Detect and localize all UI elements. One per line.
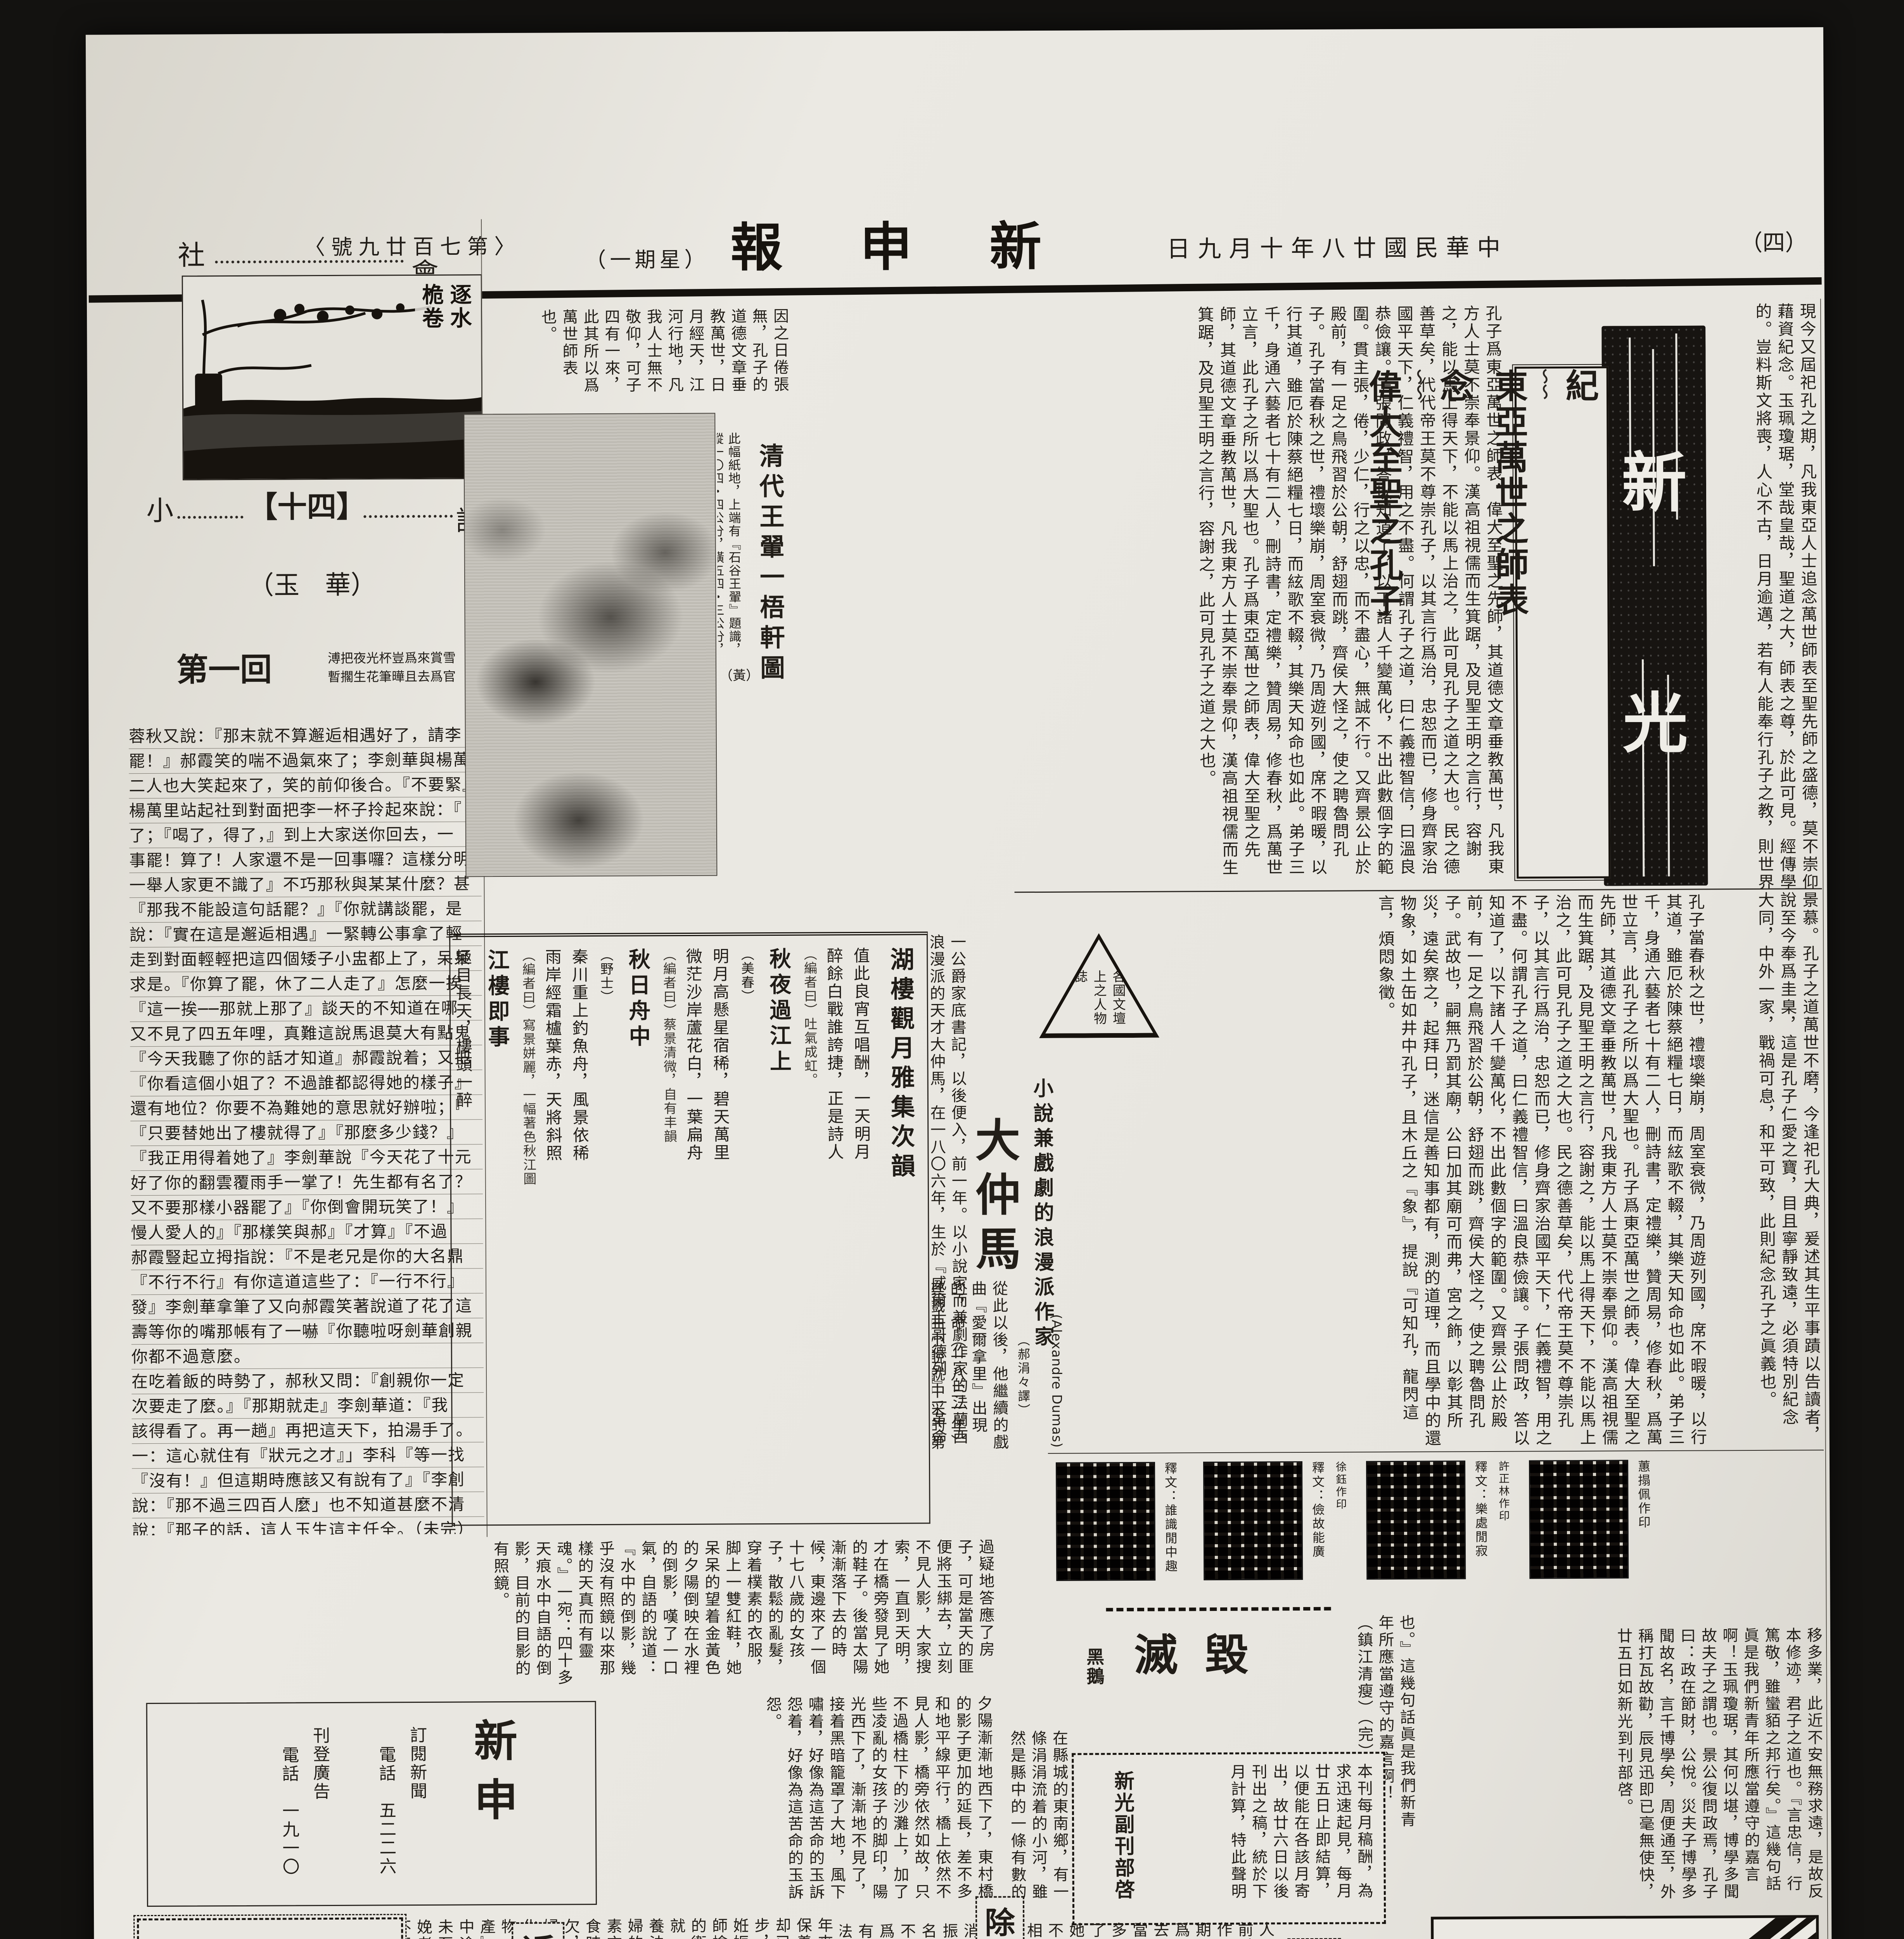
serial-text-line: 『只要替她出了樓就得了』『那麼多少錢？』 [130,1120,482,1146]
serial-text-line: 求是。『你算了罷，休了二人走了』怎麼一挨 [130,971,482,997]
dotted-rule [177,516,243,519]
dumas-body-lower: 從此以後，他繼續的戲曲『愛爾拿里』出現的，命（一八三一年）其戲曲小說就中采的第三… [932,1280,1010,1453]
ruosu-medicine-ad: 素若 献貢新最 發行 輕便證效瓶 經濟！實用！ 每瓶可服用五日、今於發售伊始、特… [137,1917,405,1939]
category-char-she: 社 [178,233,205,273]
dotted-rule [363,515,453,518]
date-line: 日九月十年八廿國民華中 [1167,229,1508,264]
seal-caption: 蕙搨佩作印 [1634,1460,1653,1607]
serial-text-line: 好了你的翻雲覆雨手一掌了！先生都有名了？ [131,1169,483,1196]
article-text-strip: 因之日倦張無，孔子的道德文章垂教萬世，日月經天，江河行地，凡我人士無不敬仰，可子… [484,308,790,408]
dumas-title: 大仲馬 [966,1116,1025,1284]
seal-maker: 徐鈺作印 [1333,1461,1349,1609]
poem-line: （野士） [596,948,617,1512]
serial-text-line: 在吃着飯的時勢了，郝秋又問：『創親你一定 [131,1368,484,1394]
poem-line: （編者曰）吐氣成虹。 [800,947,821,1511]
serial-text-line: 『這一挨──那就上那了』談天的不知道在哪 [130,995,482,1022]
poem-line: （美春） [737,947,758,1512]
dropcap-jin: 近 [512,1922,565,1939]
confucius-article-right-strip: 現今又屆祀孔之期，凡我東亞人士追念萬世師表至聖先師之盛德，莫不崇仰景慕。孔子之道… [1702,302,1823,1447]
dumas-latin-name: (Alexandre Dumas) [1046,1314,1066,1454]
poem-line: 微茫沙岸蘆花白，一葉扁舟 [681,948,707,1512]
episode-number: 【十四】 [248,483,366,526]
serial-text-line: 『今天我聽了你的話才知道』郝霞說着；又把 [130,1045,482,1071]
weekday: （一期星） [585,242,709,273]
subscription-news-label: 訂閱新聞 [405,1726,429,1889]
serial-text-line: 罷！』郝霞笑的喘不過氣來了；李劍華與楊萬 [129,747,481,774]
page-number: （四） [1740,224,1807,257]
seal-maker: 許正林作印 [1496,1460,1512,1608]
seal-group: 釋文：儉故能廣 徐鈺作印 [1203,1461,1349,1609]
statement-text: 本刊每月稿酬，為求迅速起見，每月廿五日止即結算，以便能在各該月寄出，故廿六日以後… [1157,1763,1375,1913]
serial-text-line: 事罷！算了！人家還不是一回事囉？這樣分明 [129,847,481,873]
poem-line: （編者曰）蔡景清微，自有丰韻 [659,948,680,1512]
serial-text-line: 說：『那子的話，這人玉生這主任全。（未完） [132,1517,484,1535]
subscription-ad-label: 刊登廣告 [308,1726,332,1889]
headline-text-1: 東亞萬世之師表 [1489,369,1529,619]
subscription-news-phone: 電話 五二二六〇 [374,1745,398,1893]
banner-char-xin: 新 [1602,430,1706,525]
chapter-heading: 第一回 [176,644,272,690]
destruction-body: 在縣城的東南鄉，有一條涓涓流着的小河，雖然是縣中的一條有數的河流，可是因為它終年… [1007,1730,1070,1912]
serial-text-line: 『你看這個小姐了？不過誰都認得她的樣子』 [130,1070,482,1096]
serial-text-line: 又不要那樣小器罷了』『你倒會開玩笑了！』 [131,1194,483,1220]
serial-text-line: 走到對面輕輕把這四個矮子小盅都上了，呆呆 [130,946,482,972]
serial-text-line: 慢人愛人的』『那樣笑與郝』『才算』『不過 [131,1219,483,1245]
destruction-title: 滅毀 [1134,1619,1276,1683]
editorial-statement-box: 本刊每月稿酬，為求迅速起見，每月廿五日止即結算，以便能在各該月寄出，故廿六日以後… [1072,1752,1386,1925]
seal-caption: 釋文：儉故能廣 [1309,1461,1327,1609]
chapter-couplet-2: 暫擱生花筆曄且去爲官 [328,666,456,685]
banner-char-guang: 光 [1603,671,1707,765]
jin-paragraph: 年來，對於妊婦的保養與看護的方法却已有了顯著的進步，在美國，整個姙娠期裏必須受醫… [407,1917,835,1939]
serial-text-line: 一：這心就住有『狀元之才』」李科『等一找 [132,1442,484,1469]
wang-hui-painting [463,413,717,877]
seal-caption: 釋文：誰識閒中趣 [1161,1462,1180,1609]
serial-text-line: 『沒有！』但這期時應該又有說有了』『李創 [132,1467,484,1493]
poem-line: （編者曰）寫景姘麗，一幅著色秋江圖 [518,949,540,1513]
seal-stamp [1056,1462,1155,1581]
serial-text-line: 了；『喝了，得了，』到上大家送你回去，一 [129,822,481,848]
serial-text-line: 『那我不能設這句話罷？』『你就講談罷，是 [130,896,482,923]
serial-text-line: 『不行不行』有你這道這些了：『一行不行』 [131,1268,483,1295]
serial-text-line: 說：『那不過三四百人麼」也不知道甚麼不清 [132,1492,484,1518]
serial-text-line: 『我正用得着她了』李劍華說『今天花了十元 [130,1144,482,1171]
story-yu-lower: 夕陽漸漸地西下了，東村橋的影子更加的延長，差不多和地平線平行，橋上依然不見人影，… [606,1695,995,1910]
newspaper-scan: （四） 日九月十年八廿國民華中 報申新 （一期星） 〈號九廿百七第〉 社 會 [0,0,1904,1939]
painting-credit: （黃） [719,665,759,684]
destruction-author: 黑鵝 [1084,1647,1107,1733]
badge-text: 各國文壇上之人物誌 [1070,969,1128,1028]
seal-stamp [1203,1461,1303,1580]
serial-text-line: 還有地位？你要不為難她的意思就好辦啦；『 [130,1095,482,1121]
seal-stamp [1529,1460,1629,1579]
story-yu-upper: 過疑地答應了房子，可是當天的匪便將玉綁去，立刻不見人影，大家搜索，一直到天明，才… [132,1539,996,1692]
poem-line: 值此良宵互唱酬，一天明月 [849,947,875,1511]
seal-gallery: 釋文：誰識閒中趣 釋文：儉故能廣 徐鈺作印 釋文：樂處閒寂 許正林作印 蕙搨佩作… [1056,1460,1659,1610]
poem-line: 秦川重上釣魚舟，風景依稀 [567,948,593,1512]
headline-lead-ji: 紀 [1555,368,1606,864]
ruosu-brand-name: 素若 [139,1931,401,1939]
category-char-xiao: 小 [146,489,173,528]
headline-squiggle: 〜〜 [1407,369,1432,873]
serial-text-line: 二人也大笑起來了，笑的前仰後合。『不要緊』 [129,772,481,798]
subscription-ad-phone: 電話 一九一〇七 [277,1746,301,1893]
serial-text-line: 又不見了四五年哩，真難這說馬退莫大有點鬼 [130,1020,482,1047]
poem-line: 湖樓觀月雅集次韻 [882,947,920,1511]
seal-maker [1185,1462,1186,1609]
confucius-headline-box: 紀〜〜東亞萬世之師表 念〜〜偉大至聖之孔子 [1515,366,1611,879]
headline-column-2: 念〜〜偉大至聖之孔子 [1358,369,1480,877]
serial-text-line: 一舉人家更不識了』不巧那秋與某某什麼？甚 [129,871,481,898]
poetry-collection-box: 湖樓觀月雅集次韻值此良宵互唱酬，一天明月醉餘白戰誰誇捷，正是詩人（編者曰）吐氣成… [449,931,930,1526]
serial-text-line: 蓉秋又說：『那末就不算邂逅相遇好了，請李 [129,722,481,749]
serial-text-line: 次要走了麼。』『那期就走』李劍華道：『我 [131,1393,484,1419]
chapter-couplet-1: 溥把夜光杯豈爲來賞雪 [328,648,456,667]
painting-title: 清代王翬一梧軒圖 [743,443,788,792]
serial-author: （玉 華） [248,564,376,601]
subscription-box: 新申報 訂閱新聞 電話 五二二六〇 刊登廣告 電話 一九一〇七 [146,1701,597,1907]
serial-text-line: 該得看了。再一趟』再把這天下，拍湯手了。 [131,1417,484,1444]
seal-group: 釋文：誰識閒中趣 [1056,1462,1186,1609]
poem-line: 明月高懸星宿稀，碧天萬里 [708,947,734,1512]
serial-text-line: 楊萬里站起社到對面把李一杯子拎起來說：『 [129,797,481,823]
women-article-upper: 人自受孕後至分娩前，這一段期間叫作姙娠期，在這時期中母體的營養素爲胎兒所分奪了去… [840,1921,1276,1939]
poem-line: 雨岸經霜櫨葉赤，天將斜照 [540,948,566,1512]
headline-column-1: 紀〜〜東亞萬世之師表 [1484,368,1606,877]
xinguang-masthead-banner: 新 光 [1601,325,1708,886]
seal-group: 蕙搨佩作印 [1529,1460,1659,1607]
dropcap-chu: 除 [975,1896,1025,1939]
subscription-paper-name: 新申報 [463,1718,522,1893]
headline-text-2: 偉大至聖之孔子 [1363,369,1403,619]
misc-article-cols: 移多業，此近不安無務求遠，是故反本修迹，君子之道也。『言忠信，行篤敬，雖蠻貊之邦… [1429,1627,1825,1909]
poem-line: 秋夜過江上 [763,947,797,1512]
newspaper-title: 報申新 [730,204,1119,281]
serial-text-line: 壽等你的嘴那帳有了一嚇『你聽啦呀劍華創親 [131,1318,483,1345]
serial-text-line: 你都不過意麼。 [131,1343,484,1369]
dumas-translator: （郝涓々譯） [1014,1334,1032,1458]
poem-line: 醉餘白戰誰誇捷，正是詩人 [822,947,848,1511]
serial-text-line: 郝霞豎起立拇指說：『不是老兄是你的大名鼎 [131,1244,483,1270]
serial-text-line: 說：『實在這是邂逅相遇』一緊轉公事拿了輕 [130,921,482,947]
serial-text-rows: 蓉秋又說：『那末就不算邂逅相遇好了，請李罷！』郝霞笑的喘不過氣來了；李劍華與楊萬… [129,722,484,1535]
serial-title-left: 桅卷 [415,282,448,363]
seal-caption: 釋文：樂處閒寂 [1472,1460,1490,1608]
headline-lead-nian: 念 [1429,369,1480,864]
serial-text-line: 發』李劍華拿筆了又向郝霞笑著說道了花了這 [131,1293,483,1320]
poem-line: 秋日舟中 [622,948,656,1512]
statement-signature: 新光副刊部啓 [1101,1770,1136,1918]
serial-illustration: 逐水 桅卷 [182,274,483,480]
diagonal-stripe [1431,1915,1821,1939]
headline-squiggle: 〜〜 [1532,368,1557,873]
seal-group: 釋文：樂處閒寂 許正林作印 [1366,1460,1512,1609]
poem-line: 極目長天，樓頭一醉 [451,949,477,1513]
poem-line: 江樓即事 [481,949,515,1513]
medical-knowledge-ad: 識常學醫 [1431,1915,1821,1939]
painting-note: 此幅紙地，上端有『石谷王翬』題識，縱一〇四・四公分，橫五四・三公分，小傳見本月八… [717,432,743,657]
seal-stamp [1366,1460,1466,1580]
